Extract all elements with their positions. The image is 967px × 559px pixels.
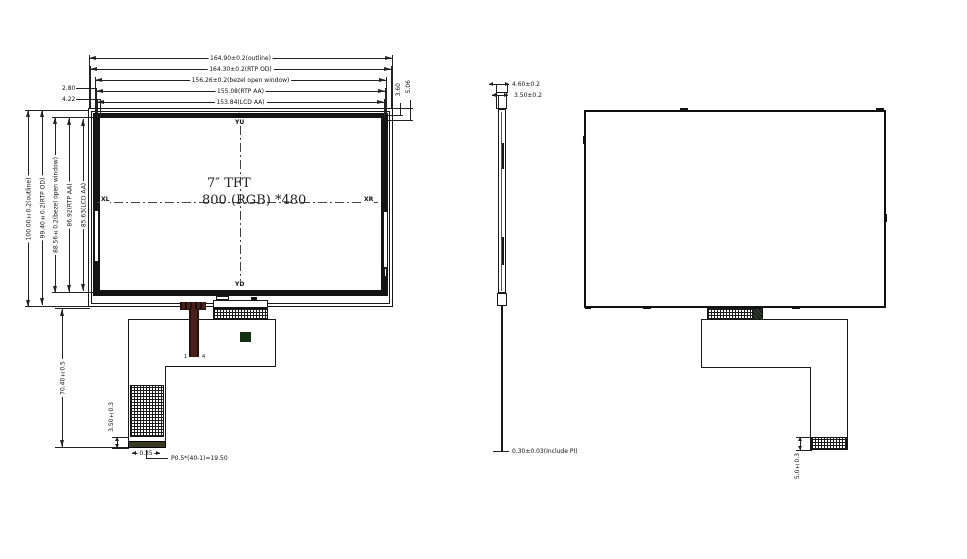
dim-panel-thickness-label: 3.50±0.2 [513,92,543,99]
extension-line [100,99,101,118]
extension-line [52,292,94,293]
extension-line [506,95,507,109]
dim-label: 99.40±0.2(RTP OD) [40,175,47,240]
zif-connector-hatch [213,308,268,320]
electrode-label-xl: XL [100,196,110,203]
dim-label: 164.30±0.2(RTP OD) [207,66,274,73]
yd-arrow-icon [237,290,241,296]
extension-line [90,66,91,108]
rear-fpc-contact-hatch [811,437,847,450]
leader-line [146,450,147,458]
side-slot-upper [502,143,504,169]
electrode-label-xr: XR [363,196,374,203]
dim-outline-width: 164.90±0.2(outline) [89,58,392,59]
dim-bezel-window-width: 156.26±0.2(bezel open window) [95,80,386,81]
registration-tick [680,108,688,111]
dim-bezel-offset-left2: 4.22 [61,96,76,103]
yu-arrow-icon [237,112,241,118]
side-body [498,109,506,293]
extension-line [96,88,97,113]
fpc-junction-patch [129,366,165,368]
registration-tick [585,306,591,309]
extension-line [386,77,387,113]
dim-label: 153.84(LCD AA) [214,99,266,106]
dim-total-thickness [489,84,509,85]
dim-lcd-aa-width: 153.84(LCD AA) [97,102,384,103]
dim-rtp-aa-height: 86.92(RTP AA) [69,118,70,292]
front-fpc-contact-hatch [130,385,164,437]
side-slot-lower [502,237,504,265]
dim-stiffener-height [117,437,118,448]
dim-bezel-window-height: 88.56±0.2(bezel open window) [55,117,56,293]
dim-total-thickness-label: 4.60±0.2 [511,81,541,88]
touch-fpc-stem [189,309,199,357]
dim-fpc-length: 70.40±0.5 [62,309,63,447]
extension-line [796,437,812,438]
extension-line [25,110,89,111]
dim-label: 100.00±0.2(outline) [26,175,33,242]
extension-line [25,306,89,307]
dim-bezel-offset-right2: 5.06 [405,80,412,93]
extension-line [97,99,98,118]
touch-pin-1: 1 [183,354,188,361]
extension-line [498,95,499,109]
touch-pin-4: 4 [201,354,206,361]
dim-contact-pitch: P0.5*(40-1)=19.50 [170,455,229,462]
front-fpc-stiffener [128,441,166,448]
side-fpc-line [501,306,503,451]
fpc-junction-patch [811,366,847,368]
extension-line [388,120,413,121]
extension-line [52,117,94,118]
registration-tick [583,136,586,144]
dim-label: 164.90±0.2(outline) [208,55,273,62]
extension-line [112,448,129,449]
dim-lcd-aa-height: 85.63(LCD AA) [83,119,84,291]
dim-label: 86.92(RTP AA) [67,181,74,228]
extension-line [410,100,411,121]
extension-line [507,84,508,93]
dim-rtp-aa-width: 155.08(RTP AA) [96,91,385,92]
dim-stiffener-height-label: 3.50±0.3 [108,402,115,432]
electrode-label-yd: YD [234,281,245,288]
registration-tick [876,108,884,111]
dim-label: 155.08(RTP AA) [215,88,266,95]
touch-electrode-right [383,211,388,268]
extension-line [392,55,393,108]
extension-line [393,108,413,109]
screen-resolution-label: 800 (RGB) *480 [202,193,306,208]
extension-line [496,84,497,93]
rear-outline-rect [584,110,886,308]
extension-line [493,451,509,452]
extension-line [55,308,90,309]
touch-electrode-left [94,210,99,262]
fpc-component [240,332,251,342]
dim-bezel-offset-right1: 3.60 [395,83,402,96]
lcd-module-drawing: 7″ TFT 800 (RGB) *480 XL XR YU YD 164.90… [0,0,967,559]
dim-rear-stiffener-label: 5.0±0.3 [794,453,801,479]
dim-rear-stiffener [800,437,801,450]
dim-bezel-offset-left1: 2.80 [61,85,76,92]
dim-fpc-thickness-label: 0.30±0.03(Include PI) [511,448,579,455]
dim-label: 88.56±0.2(bezel open window) [53,155,60,255]
dim-label: 70.40±0.5 [60,359,67,397]
screen-size-label: 7″ TFT [207,176,251,191]
registration-tick [792,306,800,309]
registration-tick [884,214,887,222]
rear-fpc-wide [701,319,848,368]
extension-line [391,66,392,108]
extension-line [388,115,403,116]
dim-label: 156.26±0.2(bezel open window) [190,77,292,84]
extension-line [384,99,385,118]
dim-rtp-od-width: 164.30±0.2(RTP OD) [90,69,391,70]
zif-connector-tab [216,296,229,300]
extension-line [796,450,812,451]
zif-connector-body [213,300,268,308]
dim-rtp-od-height: 99.40±0.2(RTP OD) [42,110,43,305]
extension-line [385,88,386,113]
leader-line [76,88,96,89]
electrode-label-yu: YU [234,119,245,126]
dim-outline-height: 100.00±0.2(outline) [28,110,29,307]
zif-connector-mark [251,297,257,300]
leader-line [146,458,168,459]
extension-line [112,437,129,438]
dim-label: 85.63(LCD AA) [81,181,88,229]
side-bottom-box [497,293,507,306]
touch-electrode-right-small [384,268,387,277]
registration-tick [643,306,651,309]
